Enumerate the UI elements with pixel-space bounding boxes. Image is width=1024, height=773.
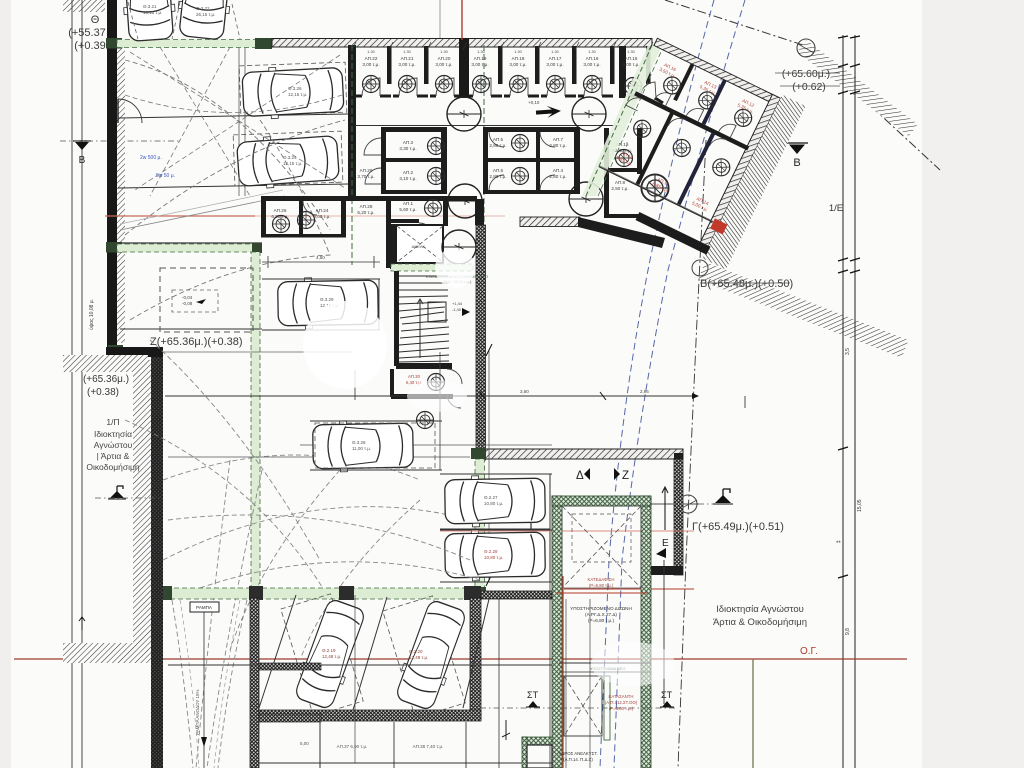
svg-text:ΑΠ.7: ΑΠ.7	[553, 137, 564, 142]
svg-text:Θ.3.21: Θ.3.21	[143, 4, 157, 9]
svg-text:3,00 τ.μ.: 3,00 τ.μ.	[398, 62, 415, 67]
svg-text:3,5: 3,5	[845, 348, 851, 355]
svg-text:2,80 τ.μ.: 2,80 τ.μ.	[549, 143, 566, 148]
svg-text:(+0.38): (+0.38)	[87, 387, 119, 398]
svg-text:ΑΠ.15: ΑΠ.15	[625, 56, 638, 61]
svg-text:10,80 τ.μ.: 10,80 τ.μ.	[484, 501, 503, 506]
svg-text:Β: Β	[79, 155, 86, 166]
svg-text:12,48 τ.μ.: 12,48 τ.μ.	[322, 654, 341, 659]
svg-text:Ζ(+65.36μ.)(+0.38): Ζ(+65.36μ.)(+0.38)	[150, 336, 243, 348]
svg-text:3,00 τ.μ.: 3,00 τ.μ.	[362, 62, 379, 67]
svg-text:Άρτια & Οικοδομήσιμη: Άρτια & Οικοδομήσιμη	[713, 617, 807, 628]
svg-text:5,00: 5,00	[300, 741, 309, 746]
svg-text:3,10 τ.μ.: 3,10 τ.μ.	[399, 176, 416, 181]
svg-text:(+0.62): (+0.62)	[792, 81, 826, 93]
svg-text:2,96: 2,96	[640, 389, 649, 394]
svg-text:(Α.Π.Ι.12.ΣΤ.ΟΘ): (Α.Π.Ι.12.ΣΤ.ΟΘ)	[605, 700, 638, 705]
svg-text:Οικοδομήσιμη: Οικοδομήσιμη	[86, 462, 139, 472]
svg-text:ΑΠ.28: ΑΠ.28	[360, 204, 373, 209]
svg-text:(+65.36μ.): (+65.36μ.)	[83, 374, 129, 385]
svg-text:ΑΠ.18: ΑΠ.18	[512, 56, 525, 61]
svg-text:Θ.2.19: Θ.2.19	[322, 648, 336, 653]
svg-text:(+55.37: (+55.37	[68, 27, 106, 39]
svg-text:ΑΠ.26: ΑΠ.26	[274, 208, 287, 213]
svg-text:ΑΠ.37 6,90 τ.μ.: ΑΠ.37 6,90 τ.μ.	[337, 744, 368, 749]
svg-text:**: **	[836, 541, 841, 547]
svg-text:+0,10: +0,10	[528, 100, 540, 105]
svg-text:(Α.Π.14. Π.Δ.Χ): (Α.Π.14. Π.Δ.Χ)	[563, 757, 593, 762]
svg-text:3,60: 3,60	[520, 389, 529, 394]
svg-text:3,00 τ.μ.: 3,00 τ.μ.	[622, 62, 639, 67]
svg-text:9,8: 9,8	[845, 628, 851, 635]
svg-text:1.30: 1.30	[514, 50, 521, 54]
svg-text:+1,44: +1,44	[452, 301, 463, 306]
svg-text:Θ.2.20: Θ.2.20	[409, 649, 423, 654]
svg-text:ΑΝΕΛΚ.: ΑΝΕΛΚ.	[412, 244, 427, 249]
svg-text:1.30: 1.30	[367, 50, 374, 54]
svg-text:-0,04: -0,04	[182, 295, 193, 300]
svg-text:5,60 τ.μ.: 5,60 τ.μ.	[399, 207, 416, 212]
svg-text:3,30 τ.μ.: 3,30 τ.μ.	[399, 146, 416, 151]
svg-text:15,05: 15,05	[857, 499, 863, 512]
svg-text:(Ρ=6,80 τ.μ.): (Ρ=6,80 τ.μ.)	[588, 618, 615, 623]
svg-text:ΑΠ.2: ΑΠ.2	[403, 170, 414, 175]
svg-text:ΑΠ.16: ΑΠ.16	[586, 56, 599, 61]
svg-text:3,00 τ.μ.: 3,00 τ.μ.	[583, 62, 600, 67]
svg-text:-1,40: -1,40	[452, 307, 462, 312]
svg-text:Θ.3.26: Θ.3.26	[288, 86, 302, 91]
svg-text:12,15 τ.μ.: 12,15 τ.μ.	[288, 92, 307, 97]
svg-text:ΑΠ.4: ΑΠ.4	[553, 168, 564, 173]
svg-text:Ο.Γ.: Ο.Γ.	[800, 646, 818, 657]
svg-text:ΚΑΤΑΣΑΝΤΗ: ΚΑΤΑΣΑΝΤΗ	[609, 694, 634, 699]
svg-text:Ιδιοκτησία: Ιδιοκτησία	[94, 429, 132, 439]
svg-text:Θ.2.27: Θ.2.27	[484, 495, 498, 500]
svg-text:ΑΠ.22: ΑΠ.22	[365, 56, 378, 61]
svg-text:ύψος 10,08 μ.: ύψος 10,08 μ.	[88, 299, 95, 330]
svg-text:(+65.60μ.): (+65.60μ.)	[782, 68, 830, 80]
svg-text:3,00 τ.μ.: 3,00 τ.μ.	[509, 62, 526, 67]
svg-text:2,80 τ.μ.: 2,80 τ.μ.	[549, 174, 566, 179]
svg-text:(Ρ=6,80 τ.μ.): (Ρ=6,80 τ.μ.)	[609, 706, 634, 711]
svg-text:Θ.3.29: Θ.3.29	[320, 297, 334, 302]
svg-text:Δ: Δ	[576, 470, 584, 482]
svg-text:18,15 τ.μ.: 18,15 τ.μ.	[143, 10, 162, 15]
svg-text:(Ρ=6,80 τ.μ.): (Ρ=6,80 τ.μ.)	[589, 583, 614, 588]
svg-text:1.30: 1.30	[477, 50, 484, 54]
svg-text:Ε: Ε	[662, 538, 669, 549]
svg-text:ΑΠ.17: ΑΠ.17	[549, 56, 562, 61]
svg-text:ΑΠ.24: ΑΠ.24	[316, 208, 329, 213]
svg-text:ΣΤ: ΣΤ	[527, 690, 539, 700]
svg-text:ΑΠ.6: ΑΠ.6	[493, 168, 504, 173]
svg-text:-0,08: -0,08	[182, 301, 193, 306]
svg-text:ΑΠ.20: ΑΠ.20	[438, 56, 451, 61]
svg-text:Z: Z	[622, 470, 629, 482]
svg-text:Θ: Θ	[91, 14, 100, 26]
svg-text:| Άρτια &: | Άρτια &	[97, 451, 130, 461]
svg-text:ΑΠ.8: ΑΠ.8	[615, 180, 626, 185]
svg-text:ΣΤ: ΣΤ	[661, 690, 673, 700]
svg-text:ΡΑΜΠΑ: ΡΑΜΠΑ	[196, 605, 212, 610]
svg-text:1/Ε: 1/Ε	[829, 203, 843, 214]
svg-text:Β(+65.48μ.)(+0.50): Β(+65.48μ.)(+0.50)	[700, 278, 793, 290]
svg-text:1.30: 1.30	[440, 50, 447, 54]
svg-text:26,15 τ.μ.: 26,15 τ.μ.	[196, 12, 215, 17]
svg-text:1.30: 1.30	[551, 50, 558, 54]
svg-text:Θ.2.28: Θ.2.28	[484, 549, 498, 554]
svg-text:Θ.3.28: Θ.3.28	[352, 440, 366, 445]
svg-text:ΑΠ.30: ΑΠ.30	[408, 374, 421, 379]
svg-text:ΑΠ.1: ΑΠ.1	[403, 201, 414, 206]
svg-text:2,50 τ.μ.: 2,50 τ.μ.	[611, 186, 628, 191]
svg-text:ΑΠ.3: ΑΠ.3	[403, 140, 414, 145]
svg-text:ΑΠ.38 7,40 τ.μ.: ΑΠ.38 7,40 τ.μ.	[413, 744, 444, 749]
svg-text:Αγνώστου: Αγνώστου	[94, 440, 133, 450]
svg-text:ΑΠ.19: ΑΠ.19	[474, 56, 487, 61]
svg-text:2w 500 μ.: 2w 500 μ.	[140, 155, 162, 161]
svg-text:Γ(+65.49μ.)(+0.51): Γ(+65.49μ.)(+0.51)	[692, 521, 784, 533]
svg-text:ΑΠ.29: ΑΠ.29	[360, 168, 373, 173]
svg-text:1.30: 1.30	[588, 50, 595, 54]
svg-text:Θ.3.22: Θ.3.22	[196, 6, 210, 11]
svg-text:3,00 τ.μ.: 3,00 τ.μ.	[546, 62, 563, 67]
svg-text:Β: Β	[793, 157, 800, 169]
svg-text:3,00 τ.μ.: 3,00 τ.μ.	[435, 62, 452, 67]
svg-text:1.30: 1.30	[627, 50, 634, 54]
svg-text:1.30: 1.30	[403, 50, 410, 54]
svg-text:(+0.39: (+0.39	[74, 40, 106, 52]
svg-text:Ιδιοκτησία Αγνώστου: Ιδιοκτησία Αγνώστου	[716, 604, 804, 615]
svg-text:ΧΩΡΟΣ ΑΝΕΛΚΥΣΤ.: ΧΩΡΟΣ ΑΝΕΛΚΥΣΤ.	[558, 751, 597, 756]
svg-text:12,48 τ.μ.: 12,48 τ.μ.	[409, 655, 428, 660]
svg-text:ΥΠΟΣΤΗΡΙΖΟΜΕΝΟ ΔΙΖΩΝΗ: ΥΠΟΣΤΗΡΙΖΟΜΕΝΟ ΔΙΖΩΝΗ	[570, 606, 632, 611]
svg-text:4,50: 4,50	[316, 255, 325, 260]
svg-text:3,70 τ.μ.: 3,70 τ.μ.	[357, 174, 374, 179]
svg-text:6,20 τ.μ.: 6,20 τ.μ.	[357, 210, 374, 215]
svg-text:ΑΠ.21: ΑΠ.21	[401, 56, 414, 61]
svg-text:ΚΑΤΕΔΑΦΙΣΗ: ΚΑΤΕΔΑΦΙΣΗ	[588, 577, 615, 582]
svg-text:11,00 τ.μ.: 11,00 τ.μ.	[352, 446, 371, 451]
svg-text:Θ.3.24: Θ.3.24	[283, 155, 297, 160]
svg-text:3,00 τ.μ.: 3,00 τ.μ.	[471, 62, 488, 67]
svg-text:ΑΠ.5: ΑΠ.5	[493, 137, 504, 142]
svg-text:1/Π: 1/Π	[106, 417, 119, 427]
svg-text:10,80 τ.μ.: 10,80 τ.μ.	[484, 555, 503, 560]
